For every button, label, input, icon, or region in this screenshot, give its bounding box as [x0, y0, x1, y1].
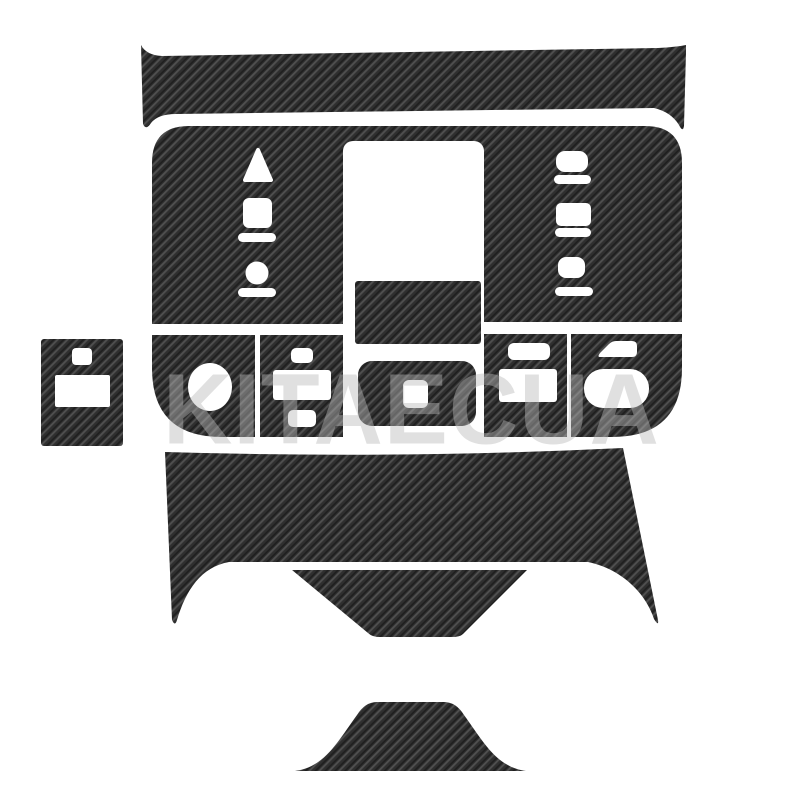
switch2-bar-cutout: [555, 228, 591, 237]
center-tongue-piece: [292, 570, 527, 637]
round-knob-hole: [188, 363, 232, 411]
right-wide-hole: [499, 369, 557, 402]
corner-pill-hole: [584, 369, 649, 408]
gear-square-cutout: [243, 198, 272, 228]
gear-bar1-cutout: [238, 233, 276, 242]
switch2-knob-cutout: [556, 203, 591, 226]
center-display-rect: [355, 281, 481, 344]
separator-knob-plus: [255, 334, 260, 437]
gear-circle-cutout: [246, 262, 269, 285]
top-trim-strip: [141, 45, 686, 129]
decal-kit-artwork: [0, 0, 800, 800]
gear-bar2-cutout: [238, 288, 276, 297]
product-photo: KITAECUA: [0, 0, 800, 800]
plus-top-hole: [291, 348, 313, 363]
switch3-bar-cutout: [555, 287, 593, 296]
switch1-knob-cutout: [556, 151, 588, 172]
plus-bottom-hole: [288, 410, 316, 427]
separator-left: [152, 324, 343, 335]
bottom-hill-piece: [295, 702, 526, 771]
side-big-hole: [55, 375, 110, 407]
switch1-bar-cutout: [554, 175, 591, 184]
plus-wide-hole: [273, 370, 331, 400]
right-top-hole: [508, 343, 550, 360]
separator-right-pair: [567, 334, 571, 437]
side-small-hole: [72, 348, 92, 365]
center-button-hole: [403, 380, 428, 408]
separator-right: [484, 322, 682, 334]
switch3-knob-cutout: [558, 257, 585, 278]
